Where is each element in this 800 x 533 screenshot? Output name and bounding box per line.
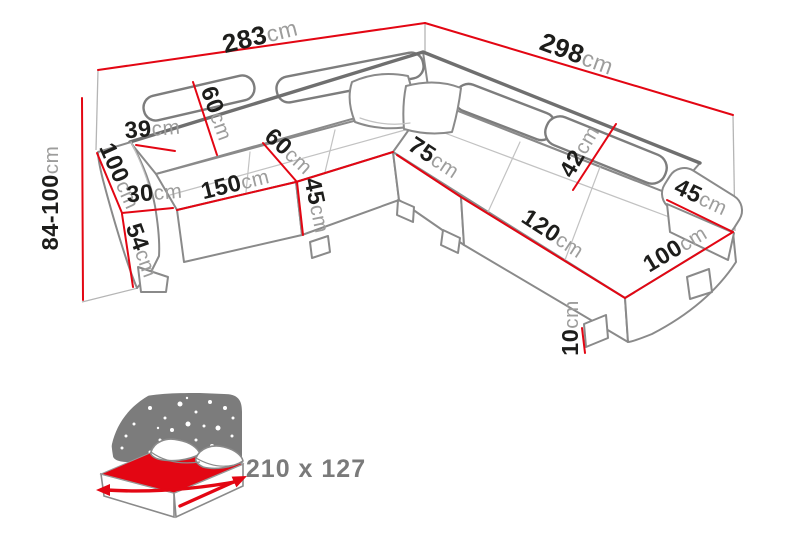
corner-pillow-2 [403,82,461,133]
dim-label-left-arm-width: 30cm [125,177,183,208]
diagram-canvas: 283cm 298cm 84-100cm 39cm 60cm 100cm 30c… [0,0,800,533]
sofa-dimensions-diagram: 283cm 298cm 84-100cm 39cm 60cm 100cm 30c… [0,0,800,533]
dim-label-width-left: 283cm [219,11,300,59]
dim-label-width-right: 298cm [536,26,618,80]
wall-left-edge [96,70,98,150]
bed-size-label: 210 x 127 [246,455,366,483]
sofa-drawing [98,51,748,347]
floor-edge [82,288,138,302]
dim-label-leg-height: 10cm [557,300,583,356]
dim-label-back-top-depth: 39cm [123,113,181,144]
bed-icon [96,391,247,517]
dim-label-height: 84-100cm [37,146,63,251]
dim-line-84-100 [82,98,83,300]
sofa-leg [310,236,330,258]
sofa-leg [584,315,608,347]
